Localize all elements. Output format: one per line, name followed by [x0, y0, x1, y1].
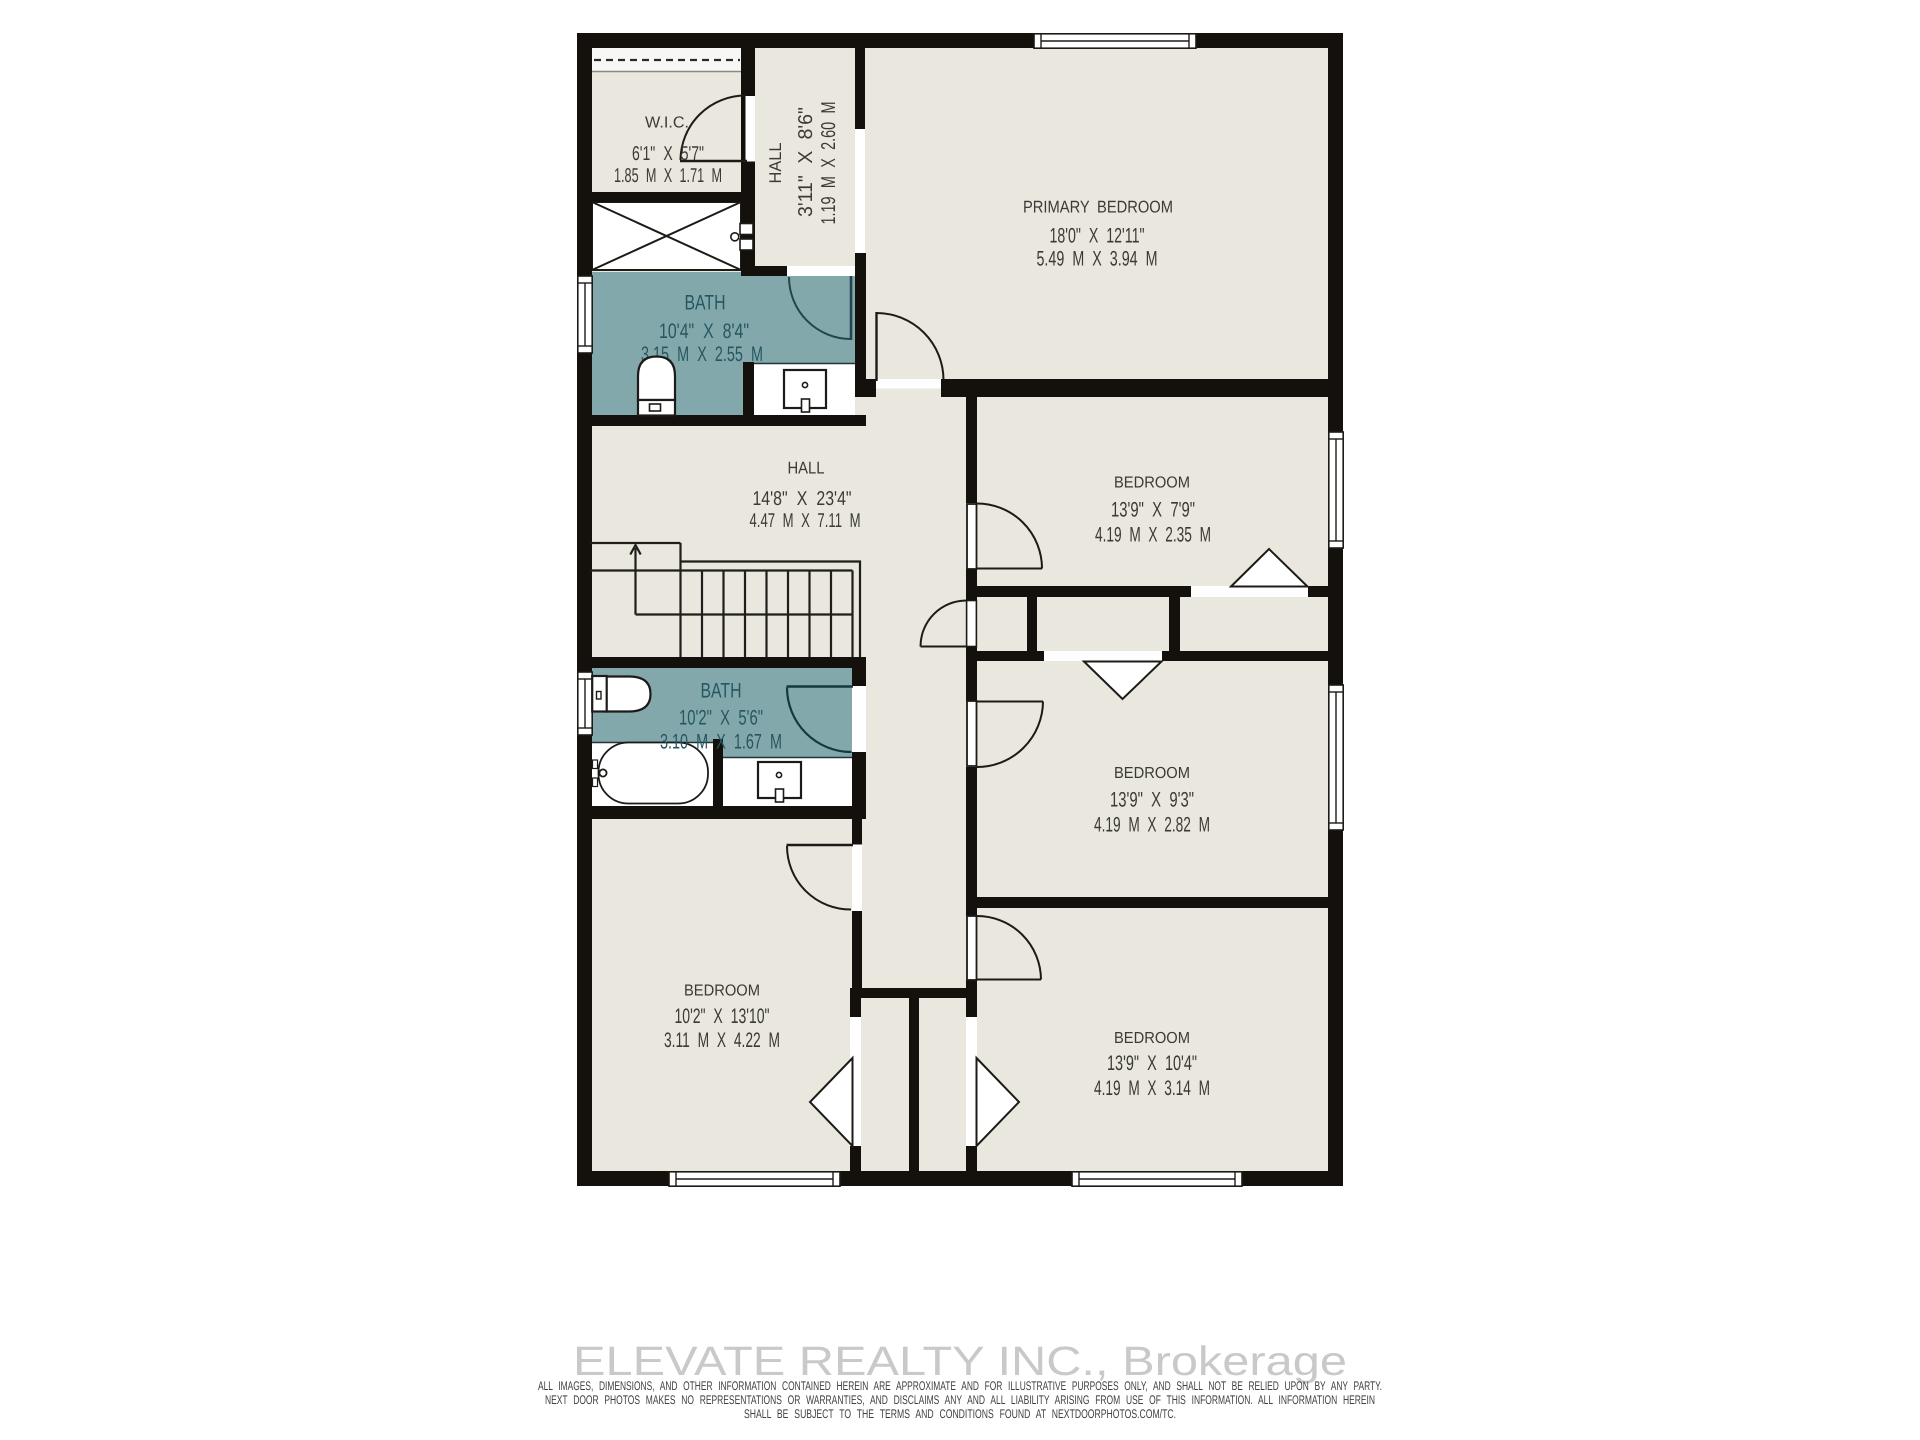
svg-text:HALL: HALL [766, 143, 785, 184]
svg-text:BATH: BATH [701, 680, 742, 703]
svg-text:10'4" X 8'4": 10'4" X 8'4" [659, 320, 749, 343]
svg-text:18'0" X 12'11": 18'0" X 12'11" [1050, 225, 1145, 248]
svg-text:10'2" X 13'10": 10'2" X 13'10" [675, 1005, 770, 1028]
svg-text:NEXT DOOR PHOTOS MAKES NO REPR: NEXT DOOR PHOTOS MAKES NO REPRESENTATION… [545, 1393, 1375, 1407]
svg-text:ALL IMAGES, DIMENSIONS, AND OT: ALL IMAGES, DIMENSIONS, AND OTHER INFORM… [538, 1379, 1382, 1393]
svg-text:4.19 M X 2.35 M: 4.19 M X 2.35 M [1095, 524, 1211, 547]
svg-text:4.19 M X 2.82 M: 4.19 M X 2.82 M [1094, 814, 1210, 837]
svg-text:BEDROOM: BEDROOM [1114, 475, 1190, 492]
svg-text:SHALL BE SUBJECT TO THE TERMS: SHALL BE SUBJECT TO THE TERMS AND CONDIT… [744, 1407, 1176, 1421]
svg-text:5.49 M X 3.94 M: 5.49 M X 3.94 M [1037, 248, 1158, 271]
svg-text:10'2" X 5'6": 10'2" X 5'6" [679, 707, 763, 730]
svg-text:3'11" X 8'6": 3'11" X 8'6" [795, 107, 817, 217]
svg-text:13'9" X 9'3": 13'9" X 9'3" [1110, 789, 1194, 812]
svg-text:BEDROOM: BEDROOM [1114, 1030, 1190, 1047]
svg-text:BEDROOM: BEDROOM [684, 983, 760, 1000]
svg-text:4.47 M X 7.11 M: 4.47 M X 7.11 M [750, 510, 861, 532]
svg-text:14'8" X 23'4": 14'8" X 23'4" [753, 488, 852, 510]
svg-text:13'9" X 7'9": 13'9" X 7'9" [1111, 499, 1195, 522]
svg-text:1.19 M X 2.60 M: 1.19 M X 2.60 M [818, 102, 840, 225]
svg-text:BEDROOM: BEDROOM [1114, 765, 1190, 782]
svg-text:3.10 M X 1.67 M: 3.10 M X 1.67 M [660, 731, 782, 754]
svg-text:1.85 M X 1.71 M: 1.85 M X 1.71 M [614, 165, 722, 187]
svg-text:PRIMARY BEDROOM: PRIMARY BEDROOM [1023, 198, 1173, 217]
svg-text:6'1" X 5'7": 6'1" X 5'7" [632, 143, 704, 165]
svg-text:3.11 M X 4.22 M: 3.11 M X 4.22 M [664, 1029, 780, 1052]
svg-text:ELEVATE REALTY INC., Brokerage: ELEVATE REALTY INC., Brokerage [573, 1338, 1347, 1384]
svg-text:BATH: BATH [685, 292, 726, 315]
svg-text:W.I.C.: W.I.C. [645, 115, 689, 132]
svg-text:HALL: HALL [788, 459, 825, 478]
svg-text:4.19 M X 3.14 M: 4.19 M X 3.14 M [1094, 1077, 1210, 1100]
svg-text:13'9" X 10'4": 13'9" X 10'4" [1107, 1052, 1197, 1075]
